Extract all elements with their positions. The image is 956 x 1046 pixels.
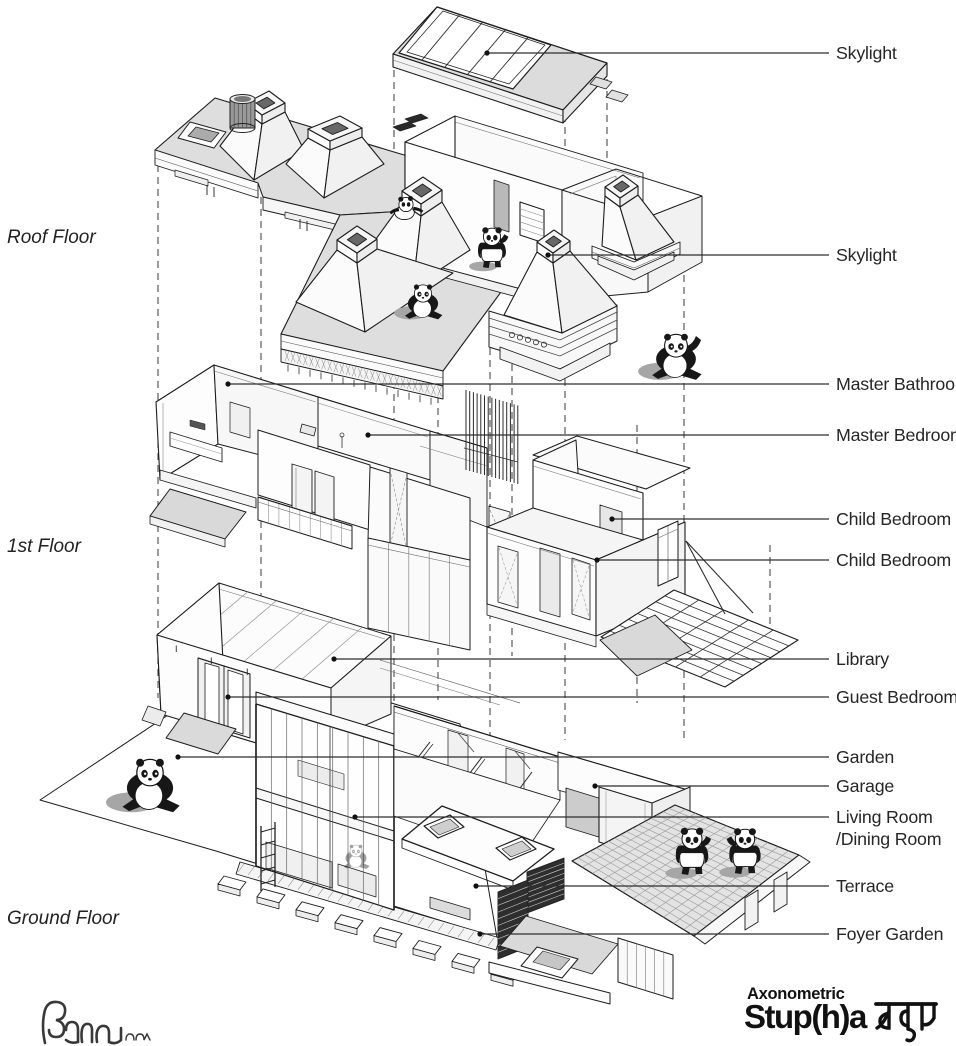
- svg-text:Guest Bedroom: Guest Bedroom: [836, 687, 956, 707]
- svg-text:Master Bedroom: Master Bedroom: [836, 425, 956, 445]
- svg-text:I: I: [175, 644, 178, 654]
- svg-text:I: I: [210, 656, 213, 666]
- svg-text:Child Bedroom: Child Bedroom: [836, 550, 951, 570]
- svg-text:Master Bathroom: Master Bathroom: [836, 374, 956, 394]
- svg-text:Library: Library: [836, 649, 889, 669]
- svg-text:Roof Floor: Roof Floor: [7, 227, 96, 248]
- svg-text:/Dining Room: /Dining Room: [836, 829, 941, 849]
- svg-text:I: I: [246, 667, 249, 677]
- svg-text:Skylight: Skylight: [836, 245, 897, 265]
- svg-text:Stup(h)a: Stup(h)a: [744, 998, 868, 1035]
- svg-text:Garden: Garden: [836, 747, 894, 767]
- svg-text:Foyer Garden: Foyer Garden: [836, 924, 943, 944]
- svg-text:Garage: Garage: [836, 776, 894, 796]
- svg-text:Child Bedroom: Child Bedroom: [836, 509, 951, 529]
- svg-text:Ground Floor: Ground Floor: [7, 908, 120, 929]
- svg-text:Living Room: Living Room: [836, 807, 933, 827]
- svg-text:Skylight: Skylight: [836, 43, 897, 63]
- svg-text:1st Floor: 1st Floor: [7, 536, 82, 557]
- svg-text:Terrace: Terrace: [836, 876, 894, 896]
